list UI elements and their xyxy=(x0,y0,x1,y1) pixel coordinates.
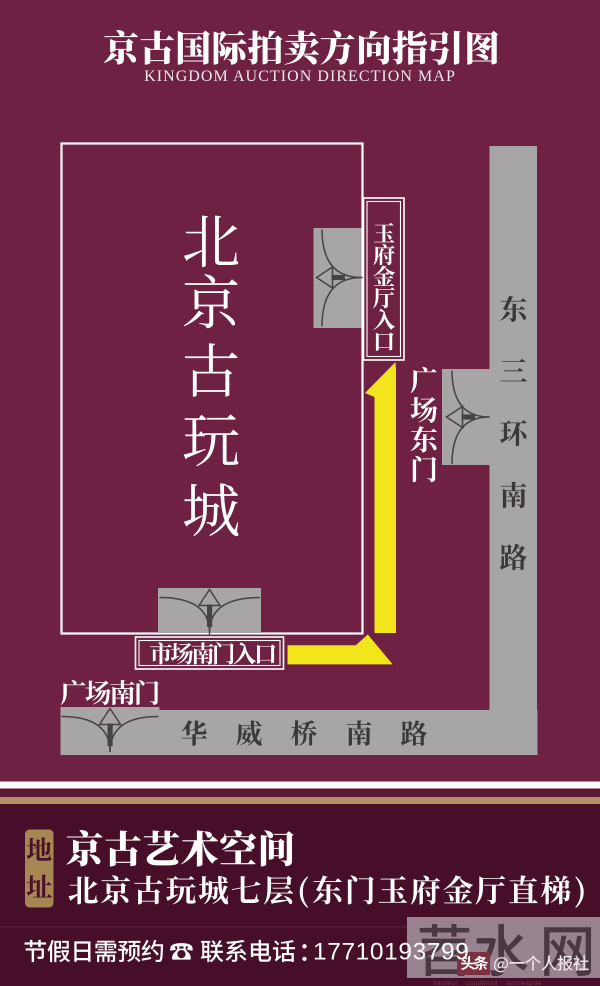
svg-text:17710193799: 17710193799 xyxy=(313,939,469,966)
svg-text:KINGDOM AUCTION DIRECTION MAP: KINGDOM AUCTION DIRECTION MAP xyxy=(144,68,456,85)
svg-text:tlaoteui coudansd autowa: tlaoteui coudansd autowapde xyxy=(433,980,542,986)
